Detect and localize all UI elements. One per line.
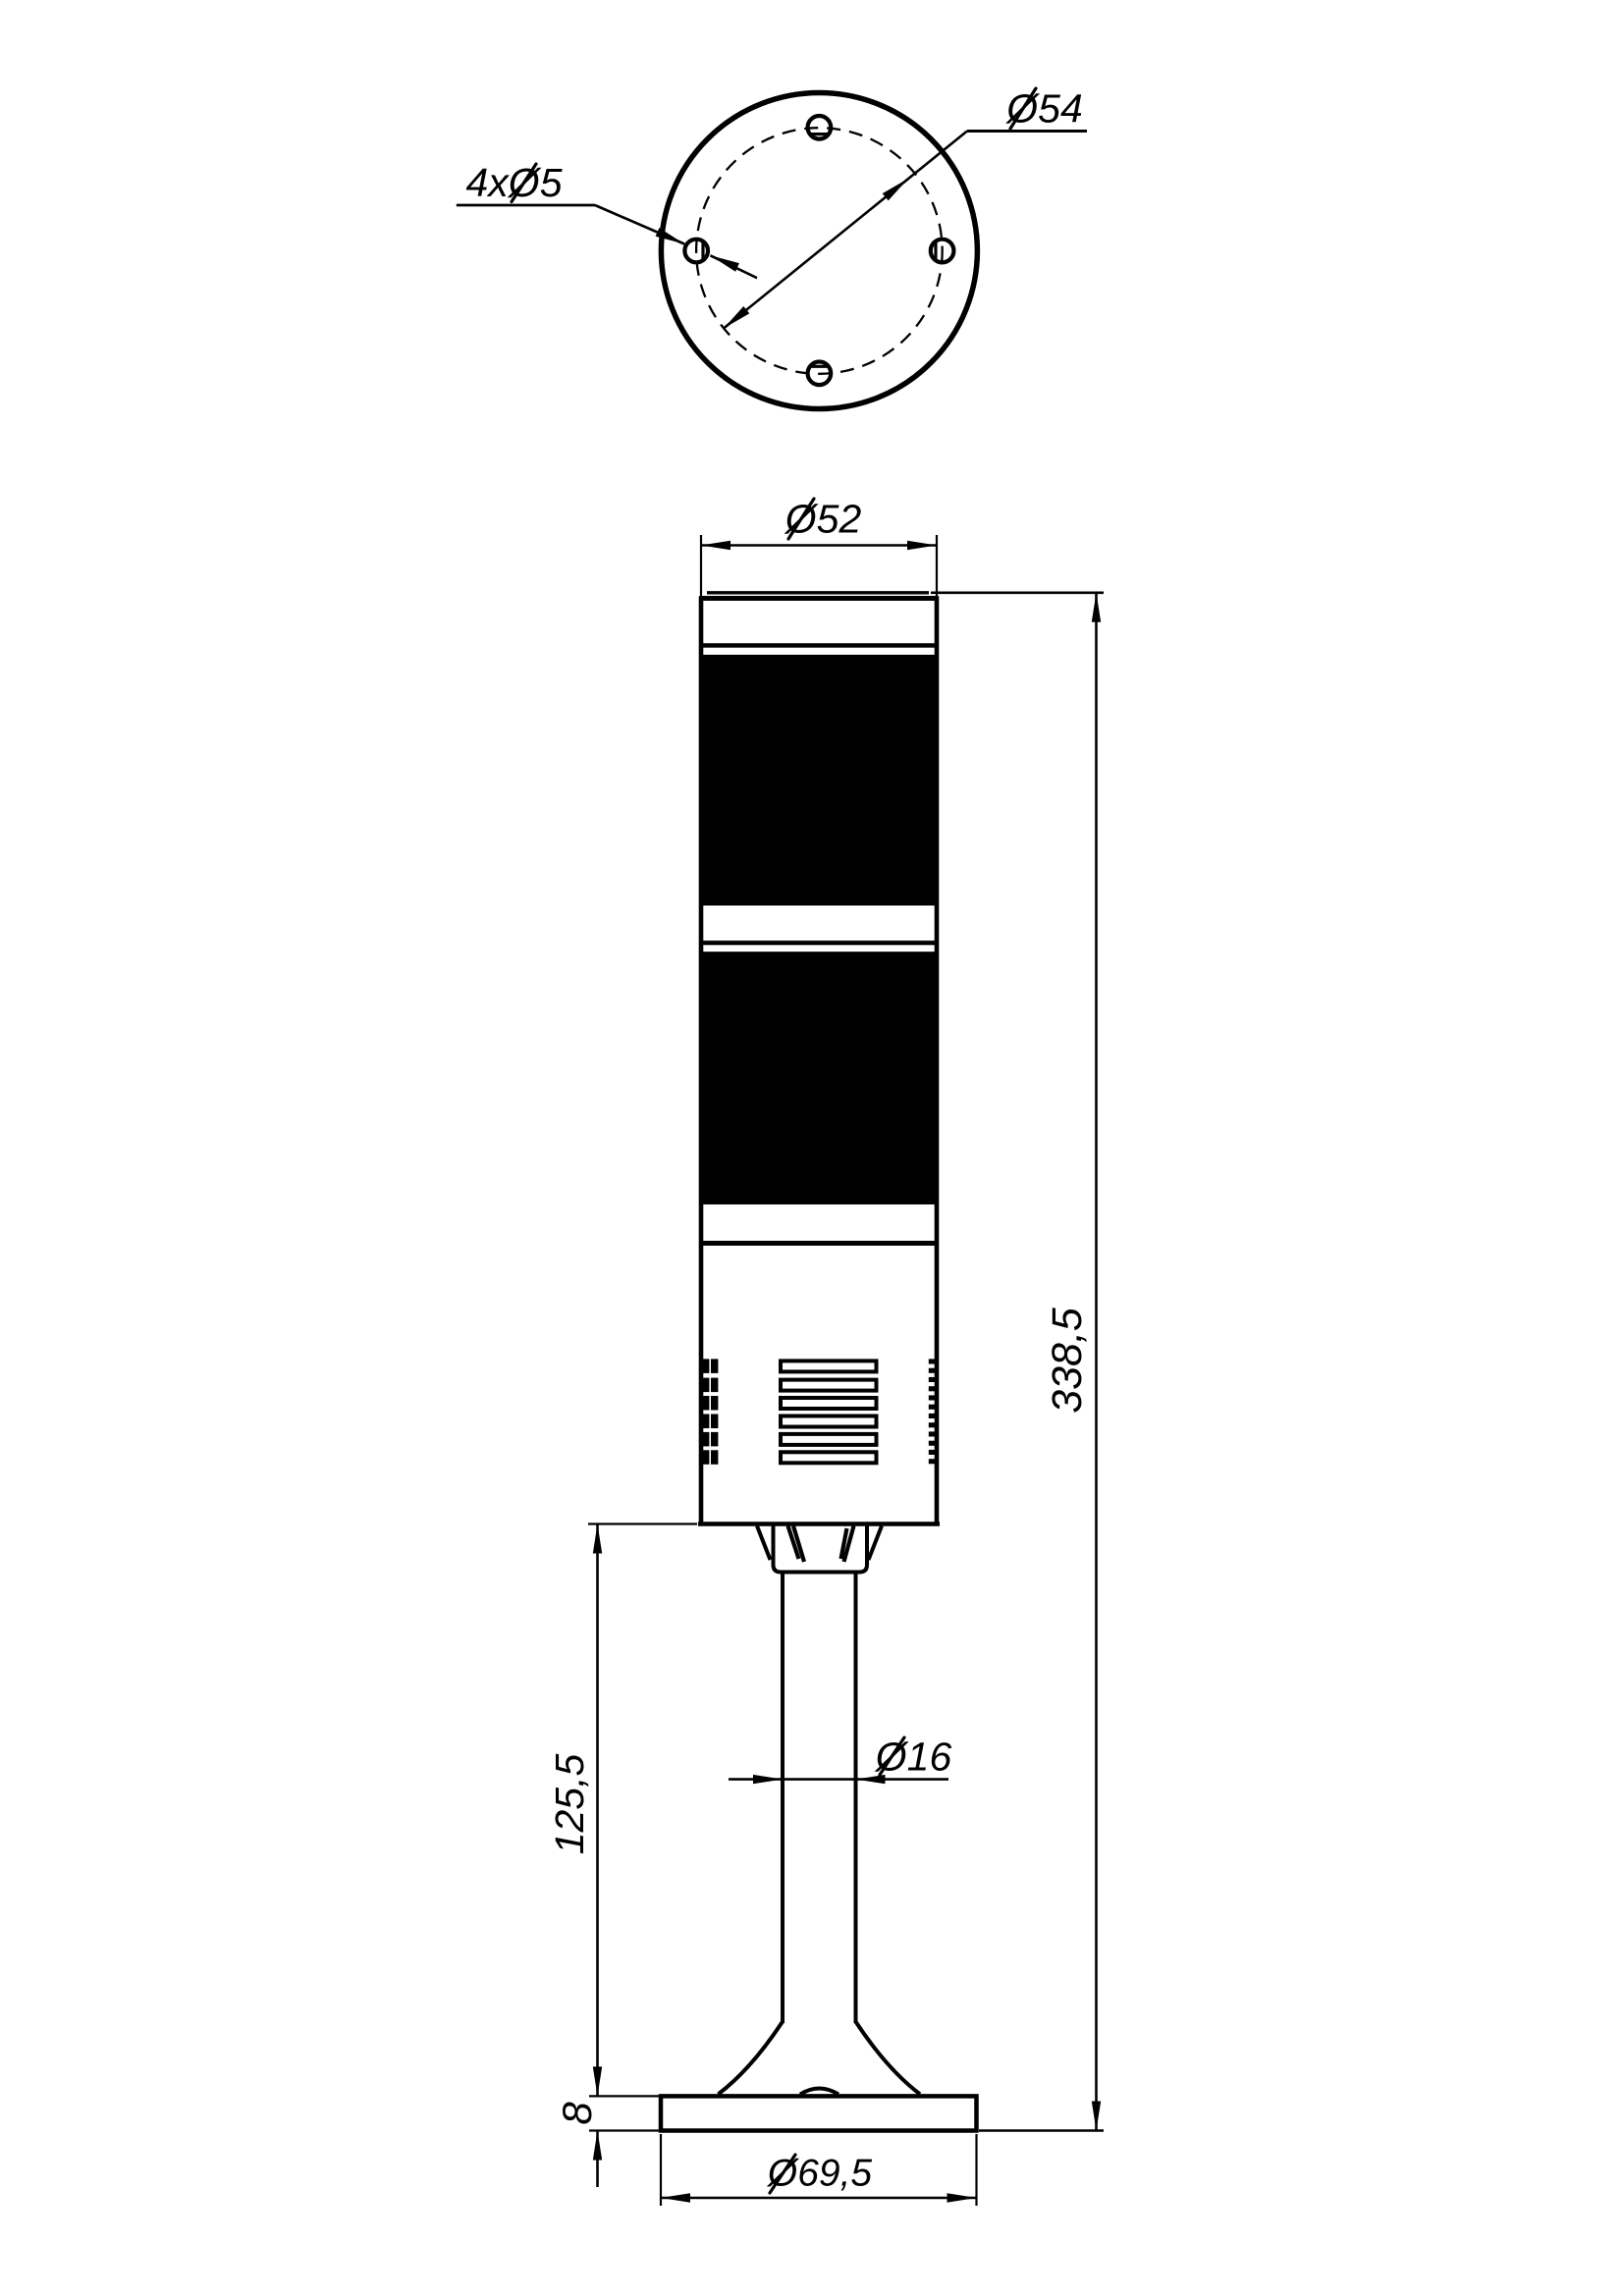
svg-text:Ø16: Ø16 <box>874 1735 952 1780</box>
svg-text:8: 8 <box>554 2102 600 2125</box>
svg-text:338,5: 338,5 <box>1044 1307 1091 1414</box>
svg-text:Ø52: Ø52 <box>784 497 862 542</box>
svg-text:Ø54: Ø54 <box>1004 86 1083 132</box>
svg-text:125,5: 125,5 <box>547 1754 592 1855</box>
